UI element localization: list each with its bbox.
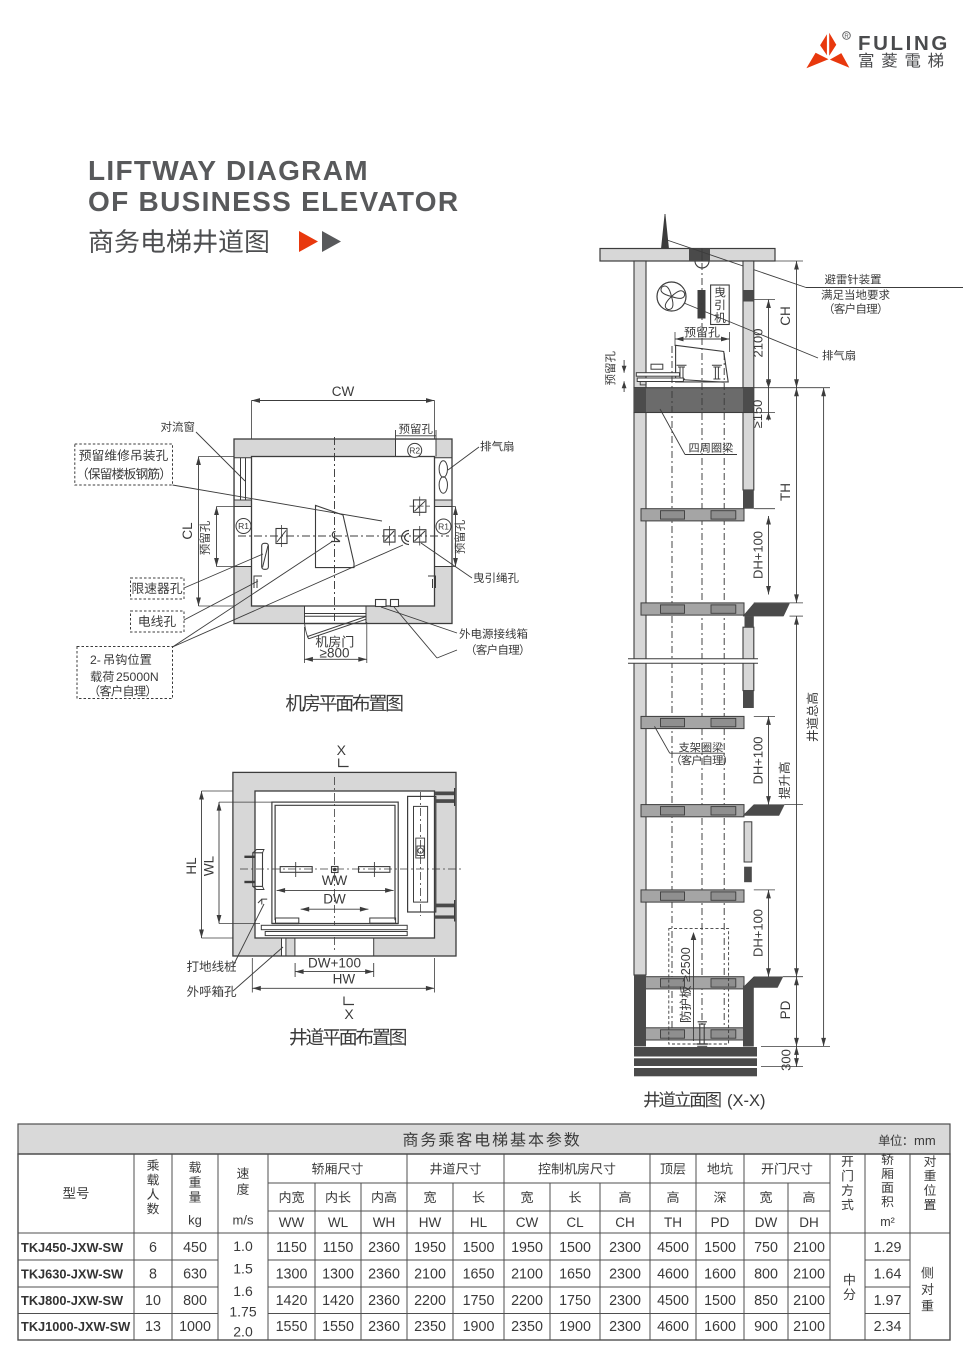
svg-text:800: 800 <box>754 1267 778 1283</box>
svg-text:6: 6 <box>149 1240 157 1256</box>
svg-text:CW: CW <box>332 384 355 399</box>
svg-text:1650: 1650 <box>559 1267 591 1283</box>
svg-text:2360: 2360 <box>368 1319 400 1335</box>
svg-text:2200: 2200 <box>511 1293 543 1309</box>
svg-text:TKJ1000-JXW-SW: TKJ1000-JXW-SW <box>21 1319 131 1334</box>
svg-text:TH: TH <box>664 1215 682 1230</box>
svg-text:2200: 2200 <box>414 1293 446 1309</box>
svg-text:2100: 2100 <box>793 1293 825 1309</box>
svg-text:DH+100: DH+100 <box>751 531 766 579</box>
svg-text:2-: 2- <box>90 653 101 667</box>
svg-text:m/s: m/s <box>233 1213 254 1228</box>
svg-text:450: 450 <box>183 1240 207 1256</box>
svg-text:4500: 4500 <box>657 1240 689 1256</box>
svg-text:1150: 1150 <box>323 1240 354 1256</box>
svg-text:2350: 2350 <box>414 1319 446 1335</box>
svg-text:800: 800 <box>183 1293 207 1309</box>
svg-text:PD: PD <box>778 1000 793 1019</box>
svg-text:PD: PD <box>711 1215 730 1230</box>
svg-text:1750: 1750 <box>463 1293 495 1309</box>
svg-text:CL: CL <box>566 1215 584 1230</box>
svg-text:CL: CL <box>180 522 195 540</box>
svg-text:DH: DH <box>799 1215 819 1230</box>
svg-text:TH: TH <box>778 483 793 501</box>
svg-text:R1: R1 <box>438 522 449 532</box>
svg-text:1.29: 1.29 <box>874 1240 902 1256</box>
svg-text:1950: 1950 <box>414 1240 446 1256</box>
svg-text:1950: 1950 <box>511 1240 543 1256</box>
svg-text:R: R <box>844 34 849 40</box>
svg-text:2350: 2350 <box>511 1319 543 1335</box>
svg-text:CH: CH <box>778 306 793 326</box>
svg-text:2.34: 2.34 <box>874 1319 902 1335</box>
svg-text:1750: 1750 <box>559 1293 591 1309</box>
svg-text:1.6: 1.6 <box>233 1283 253 1299</box>
svg-text:1000: 1000 <box>179 1319 211 1335</box>
svg-text:2100: 2100 <box>414 1267 446 1283</box>
svg-text:1420: 1420 <box>322 1293 354 1309</box>
svg-text:750: 750 <box>754 1240 778 1256</box>
svg-text:TKJ630-JXW-SW: TKJ630-JXW-SW <box>21 1267 124 1282</box>
svg-text:2100: 2100 <box>793 1267 825 1283</box>
svg-text:2100: 2100 <box>793 1240 825 1256</box>
svg-text:kg: kg <box>188 1213 202 1228</box>
svg-text:1.97: 1.97 <box>874 1293 902 1309</box>
svg-text:2300: 2300 <box>609 1319 641 1335</box>
svg-text:WW: WW <box>322 873 348 888</box>
svg-text:HL: HL <box>184 857 199 875</box>
svg-text:WW: WW <box>279 1215 305 1230</box>
svg-text:8: 8 <box>149 1267 157 1283</box>
svg-text:1500: 1500 <box>704 1240 736 1256</box>
svg-text:WL: WL <box>328 1215 349 1230</box>
svg-text:900: 900 <box>754 1319 778 1335</box>
svg-text:X: X <box>344 1006 354 1022</box>
svg-text:1900: 1900 <box>463 1319 495 1335</box>
svg-text:FULING: FULING <box>858 32 950 55</box>
svg-text:4600: 4600 <box>657 1319 689 1335</box>
svg-text:10: 10 <box>145 1293 161 1309</box>
svg-text:300: 300 <box>779 1049 794 1071</box>
svg-text:CH: CH <box>615 1215 635 1230</box>
svg-text:2300: 2300 <box>609 1240 641 1256</box>
svg-text:1550: 1550 <box>322 1319 354 1335</box>
svg-text:2360: 2360 <box>368 1240 400 1256</box>
svg-text:2360: 2360 <box>368 1293 400 1309</box>
svg-text:mm: mm <box>914 1133 936 1148</box>
svg-text:TKJ450-JXW-SW: TKJ450-JXW-SW <box>21 1240 124 1255</box>
svg-text:13: 13 <box>145 1319 161 1335</box>
svg-text:1500: 1500 <box>704 1293 736 1309</box>
svg-text:R2: R2 <box>409 445 420 455</box>
svg-text:X: X <box>337 742 347 758</box>
svg-text:1600: 1600 <box>704 1319 736 1335</box>
svg-text:1600: 1600 <box>704 1267 736 1283</box>
svg-text:(X-X): (X-X) <box>727 1092 766 1110</box>
svg-text:1500: 1500 <box>559 1240 591 1256</box>
svg-text:DH+100: DH+100 <box>751 736 766 784</box>
svg-text:TKJ800-JXW-SW: TKJ800-JXW-SW <box>21 1293 124 1308</box>
svg-text:HW: HW <box>333 972 356 987</box>
svg-text:HW: HW <box>419 1215 442 1230</box>
svg-text:1.75: 1.75 <box>229 1304 256 1320</box>
svg-text:DW: DW <box>755 1215 778 1230</box>
svg-text:1150: 1150 <box>276 1240 307 1256</box>
svg-text:≥800: ≥800 <box>320 646 350 661</box>
svg-text:2100: 2100 <box>751 329 766 358</box>
svg-text:2300: 2300 <box>609 1267 641 1283</box>
svg-text:630: 630 <box>183 1267 207 1283</box>
svg-text:1300: 1300 <box>276 1267 308 1283</box>
svg-text:2100: 2100 <box>511 1267 543 1283</box>
svg-text:m²: m² <box>880 1215 895 1229</box>
svg-text:OF BUSINESS ELEVATOR: OF BUSINESS ELEVATOR <box>88 186 459 217</box>
svg-text:DH+100: DH+100 <box>751 909 766 957</box>
svg-text:2100: 2100 <box>793 1319 825 1335</box>
svg-text:CW: CW <box>516 1215 539 1230</box>
svg-text:DW+100: DW+100 <box>308 956 361 971</box>
svg-text:1300: 1300 <box>322 1267 354 1283</box>
svg-text:4600: 4600 <box>657 1267 689 1283</box>
svg-text:1650: 1650 <box>463 1267 495 1283</box>
svg-text:2360: 2360 <box>368 1267 400 1283</box>
svg-text:1.0: 1.0 <box>233 1238 253 1254</box>
svg-text:≥2500: ≥2500 <box>679 947 693 982</box>
svg-text:1420: 1420 <box>276 1293 308 1309</box>
svg-text:850: 850 <box>754 1293 778 1309</box>
svg-text:1500: 1500 <box>463 1240 495 1256</box>
svg-text:1.64: 1.64 <box>874 1267 902 1283</box>
svg-text:2300: 2300 <box>609 1293 641 1309</box>
svg-text:WL: WL <box>202 855 217 876</box>
svg-text:WH: WH <box>373 1215 396 1230</box>
svg-text:1550: 1550 <box>276 1319 308 1335</box>
svg-text:HL: HL <box>470 1215 488 1230</box>
svg-text:1900: 1900 <box>559 1319 591 1335</box>
svg-text:1.5: 1.5 <box>233 1261 253 1277</box>
svg-text:≥150: ≥150 <box>750 400 765 429</box>
svg-text:25000N: 25000N <box>116 670 159 684</box>
svg-text:4500: 4500 <box>657 1293 689 1309</box>
svg-text:R1: R1 <box>238 521 249 531</box>
svg-text:LIFTWAY DIAGRAM: LIFTWAY DIAGRAM <box>88 155 369 186</box>
svg-text:DW: DW <box>323 892 346 907</box>
svg-text:2.0: 2.0 <box>233 1324 253 1340</box>
